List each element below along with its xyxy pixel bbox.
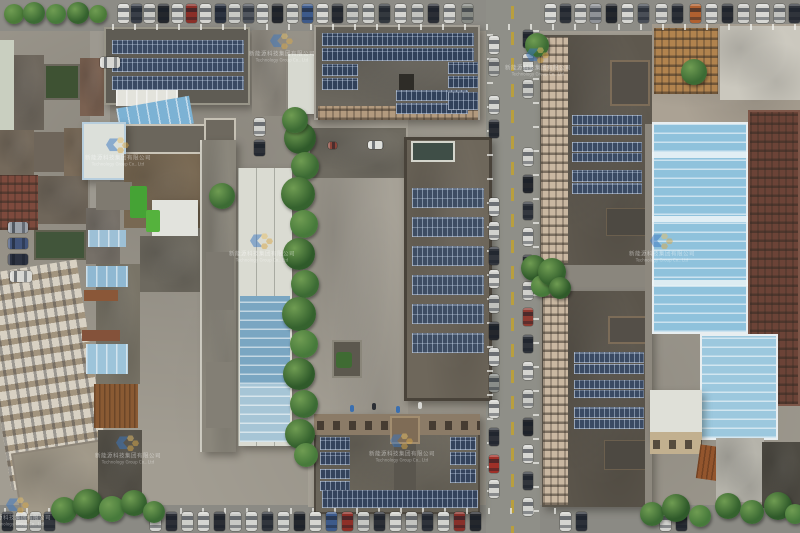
tree xyxy=(525,33,549,57)
solar-panel-row xyxy=(112,40,244,54)
parking-ticks-right-b xyxy=(533,486,539,488)
parked-car xyxy=(575,4,586,23)
parking-ticks-top xyxy=(684,24,686,30)
solar-panel-row xyxy=(450,452,476,465)
parked-car xyxy=(489,295,499,313)
parked-car xyxy=(158,4,169,23)
lane-dash-yellow xyxy=(511,214,514,227)
tree xyxy=(281,177,315,211)
solar-panel-row xyxy=(412,217,484,237)
tree xyxy=(67,2,89,24)
parked-car xyxy=(8,254,28,265)
parked-car xyxy=(523,202,533,220)
roof-gray-1 xyxy=(96,182,132,210)
lane-dash-yellow xyxy=(511,474,514,487)
parked-car xyxy=(523,335,533,353)
parked-car xyxy=(144,4,155,23)
solar-panel-row xyxy=(322,490,478,508)
parking-ticks-right-b xyxy=(533,510,539,512)
solar-panel-row xyxy=(574,352,644,363)
aerial-photograph: 新能源科技集团有限公司Technology Group Co., Ltd新能源科… xyxy=(0,0,800,533)
factory-f xyxy=(404,137,492,401)
array-f1 xyxy=(412,188,484,208)
bldg-top-gray xyxy=(252,30,286,116)
parking-ticks-top xyxy=(706,24,708,30)
bldg-h1-facade xyxy=(541,37,568,263)
person xyxy=(396,406,400,413)
parked-car xyxy=(374,512,385,531)
parked-car xyxy=(523,54,533,72)
solar-panel-row xyxy=(412,304,484,324)
lane-dash-yellow xyxy=(511,292,514,305)
parked-car xyxy=(560,4,571,23)
tree xyxy=(290,210,318,238)
parking-ticks-bottom xyxy=(290,508,292,514)
parking-ticks-top xyxy=(772,24,774,30)
solar-panel-row xyxy=(450,469,476,483)
solar-panel-row xyxy=(574,390,644,399)
solar-panel-row xyxy=(412,275,484,295)
lane-dash-yellow xyxy=(511,370,514,383)
parking-ticks-right-b xyxy=(533,462,539,464)
parked-car xyxy=(287,4,298,23)
parked-car xyxy=(706,4,717,23)
parked-car xyxy=(523,308,533,326)
lane-dash-yellow xyxy=(511,318,514,331)
solar-panel-row xyxy=(320,452,350,465)
parking-ticks-top xyxy=(728,24,730,30)
parking-ticks-top xyxy=(398,24,400,30)
tree xyxy=(291,152,319,180)
parked-car xyxy=(317,4,328,23)
tree xyxy=(290,390,318,418)
bldg-ne-white xyxy=(720,26,800,100)
parking-ticks-right-b xyxy=(533,198,539,200)
truck-green-2 xyxy=(146,210,160,232)
parking-ticks-right-b xyxy=(533,126,539,128)
parked-car xyxy=(622,4,633,23)
tree xyxy=(549,277,571,299)
person xyxy=(350,405,354,412)
roof-w-4 xyxy=(38,176,88,224)
tree xyxy=(290,330,318,358)
parking-ticks-top xyxy=(552,24,554,30)
blue-roof-band-1 xyxy=(652,152,748,158)
parked-car xyxy=(10,271,32,282)
lane-dash-yellow xyxy=(511,162,514,175)
tree xyxy=(283,358,315,390)
bldg-h2-facade xyxy=(543,293,568,505)
parking-ticks-right-a xyxy=(487,418,493,420)
parking-ticks-bottom xyxy=(510,508,512,514)
roof-rust-sw xyxy=(94,384,138,428)
lane-dash-yellow xyxy=(511,266,514,279)
parked-car xyxy=(328,142,337,149)
array-g3 xyxy=(450,437,476,465)
parking-ticks-top xyxy=(376,24,378,30)
lane-dash-yellow xyxy=(511,6,514,19)
parked-car xyxy=(545,4,556,23)
parked-car xyxy=(774,4,785,23)
parked-car xyxy=(332,4,343,23)
solar-panel-row xyxy=(412,188,484,208)
blue-roof-band-2 xyxy=(652,216,748,222)
person xyxy=(418,402,422,409)
parked-car xyxy=(272,4,283,23)
strip-g xyxy=(394,444,416,490)
tree xyxy=(46,4,66,24)
parked-car xyxy=(489,270,499,288)
array-g5 xyxy=(322,490,478,508)
solar-panel-row xyxy=(320,469,350,479)
tree xyxy=(143,501,165,523)
parking-ticks-top xyxy=(442,24,444,30)
tree xyxy=(715,493,741,519)
parked-car xyxy=(100,57,120,68)
awning-blue-1 xyxy=(88,230,126,247)
parking-ticks-right-b xyxy=(533,222,539,224)
array-e2 xyxy=(448,62,478,88)
lane-dash-yellow xyxy=(511,344,514,357)
lane-dash-yellow xyxy=(511,58,514,71)
parked-car xyxy=(738,4,749,23)
solar-panel-row xyxy=(572,153,642,163)
solar-panel-row xyxy=(572,142,642,152)
parked-car xyxy=(523,80,533,98)
parked-car xyxy=(454,512,465,531)
array-f2 xyxy=(412,217,484,237)
lane-dash-yellow xyxy=(511,110,514,123)
parked-car xyxy=(254,118,265,136)
parked-car xyxy=(489,348,499,366)
array-e3 xyxy=(448,92,478,110)
parked-car xyxy=(690,4,701,23)
parked-car xyxy=(523,418,533,436)
array-e5 xyxy=(322,64,358,90)
parked-car xyxy=(672,4,683,23)
array-g2 xyxy=(320,469,350,491)
roof-w-2 xyxy=(34,132,64,172)
truck-green-1 xyxy=(130,186,147,218)
bldg-white-nw xyxy=(82,122,126,180)
parking-ticks-top xyxy=(508,24,510,30)
parking-ticks-right-a xyxy=(487,154,493,156)
roof-w-1 xyxy=(0,130,34,175)
parking-ticks-right-b xyxy=(533,30,539,32)
solar-panel-row xyxy=(572,170,642,182)
parking-ticks-right-b xyxy=(533,390,539,392)
parked-car xyxy=(789,4,800,23)
parked-car xyxy=(230,512,241,531)
lane-dash-yellow xyxy=(511,422,514,435)
solar-panel-row xyxy=(572,126,642,136)
array-g1 xyxy=(320,437,350,465)
array-h2b xyxy=(574,380,644,398)
tree xyxy=(294,443,318,467)
array-g4 xyxy=(450,469,476,483)
parked-car xyxy=(560,512,571,531)
blue-roof-se xyxy=(700,334,778,440)
white-bldg-se xyxy=(650,390,702,438)
lane-dash-yellow xyxy=(511,136,514,149)
solar-panel-row xyxy=(574,419,644,430)
tree xyxy=(640,502,664,526)
parked-car xyxy=(172,4,183,23)
parking-ticks-top xyxy=(464,24,466,30)
parked-car xyxy=(262,512,273,531)
tree xyxy=(23,2,45,24)
tree xyxy=(662,494,690,522)
tree xyxy=(785,504,800,524)
parking-ticks-top xyxy=(574,24,576,30)
roof-gray-2 xyxy=(140,236,202,292)
parked-car xyxy=(523,472,533,490)
parked-car xyxy=(30,512,41,531)
parking-ticks-bottom xyxy=(488,508,490,514)
parked-car xyxy=(215,4,226,23)
parking-ticks-top xyxy=(222,24,224,30)
parked-car xyxy=(310,512,321,531)
parked-car xyxy=(470,512,481,531)
parked-car xyxy=(523,445,533,463)
parked-car xyxy=(462,4,473,23)
parking-ticks-top xyxy=(662,24,664,30)
array-f5 xyxy=(412,304,484,324)
parking-ticks-right-b xyxy=(533,438,539,440)
solar-panel-row xyxy=(320,437,350,450)
lane-dash-yellow xyxy=(511,84,514,97)
parked-car xyxy=(406,512,417,531)
parking-ticks-top xyxy=(420,24,422,30)
parking-ticks-top xyxy=(332,24,334,30)
bldg-c-seg1 xyxy=(206,252,234,310)
parking-ticks-bottom xyxy=(466,508,468,514)
stair-g xyxy=(390,416,420,444)
parked-car xyxy=(523,175,533,193)
bldg-d-blue2 xyxy=(240,384,290,442)
tree xyxy=(282,297,316,331)
parked-car xyxy=(302,4,313,23)
parking-ticks-top xyxy=(156,24,158,30)
parked-car xyxy=(489,58,499,76)
tree xyxy=(73,489,103,519)
solar-panel-row xyxy=(412,246,484,266)
parked-car xyxy=(489,400,499,418)
tree xyxy=(283,238,315,270)
parked-car xyxy=(523,390,533,408)
array-h1a xyxy=(572,115,642,135)
solar-panel-row xyxy=(322,48,474,61)
parked-car xyxy=(722,4,733,23)
solar-panel-row xyxy=(112,76,244,90)
tree xyxy=(291,270,319,298)
bldg-l-horizontal xyxy=(122,124,212,154)
parked-car xyxy=(438,512,449,531)
parking-ticks-top xyxy=(640,24,642,30)
parking-ticks-top xyxy=(244,24,246,30)
array-f3 xyxy=(412,246,484,266)
parked-car xyxy=(118,4,129,23)
parked-car xyxy=(16,512,27,531)
parked-car xyxy=(358,512,369,531)
gray-bldg-se xyxy=(716,438,764,502)
array-h2c xyxy=(574,407,644,429)
parked-car xyxy=(489,322,499,340)
array-e1 xyxy=(322,33,474,61)
parked-car xyxy=(257,4,268,23)
array-h1b xyxy=(572,142,642,162)
parked-car xyxy=(229,4,240,23)
solar-panel-row xyxy=(450,437,476,450)
solar-panel-row xyxy=(574,364,644,375)
parking-ticks-right-a xyxy=(487,394,493,396)
tree xyxy=(282,107,308,133)
parked-car xyxy=(166,512,177,531)
parked-car xyxy=(489,96,499,114)
parked-car xyxy=(278,512,289,531)
solar-panel-row xyxy=(574,407,644,418)
parking-ticks-top xyxy=(288,24,290,30)
box-h1-a xyxy=(610,60,650,106)
lane-dash-yellow xyxy=(511,188,514,201)
solar-panel-row xyxy=(572,183,642,195)
bldg-top-white xyxy=(288,54,316,114)
parked-car xyxy=(214,512,225,531)
lane-dash-yellow xyxy=(511,448,514,461)
parking-ticks-bottom xyxy=(554,508,556,514)
parking-ticks-right-b xyxy=(533,318,539,320)
tree xyxy=(681,59,707,85)
parked-car xyxy=(182,512,193,531)
parked-car xyxy=(756,4,769,23)
parked-car xyxy=(2,512,13,531)
tree xyxy=(209,183,235,209)
parking-ticks-top xyxy=(178,24,180,30)
parking-ticks-top xyxy=(794,24,796,30)
parked-car xyxy=(489,455,499,473)
parking-ticks-right-b xyxy=(533,414,539,416)
parked-car xyxy=(444,4,455,23)
parking-ticks-top xyxy=(486,24,488,30)
parking-ticks-right-a xyxy=(487,178,493,180)
array-f4 xyxy=(412,275,484,295)
array-h1c xyxy=(572,170,642,194)
green-pond-2 xyxy=(34,230,86,260)
green-roof-pond xyxy=(44,64,80,100)
solar-panel-row xyxy=(574,380,644,389)
parked-car xyxy=(198,512,209,531)
array-a xyxy=(112,40,244,90)
parked-car xyxy=(523,498,533,516)
parked-car xyxy=(576,512,587,531)
parking-ticks-top xyxy=(266,24,268,30)
walkway-rust-2 xyxy=(82,330,120,341)
parking-ticks-top xyxy=(750,24,752,30)
parked-car xyxy=(390,512,401,531)
parked-car xyxy=(379,4,390,23)
box-h2-b xyxy=(604,440,650,470)
parked-car xyxy=(428,4,439,23)
parked-car xyxy=(326,512,337,531)
solar-panel-row xyxy=(448,62,478,74)
parked-car xyxy=(656,4,667,23)
solar-panel-row xyxy=(572,115,642,125)
parked-car xyxy=(347,4,358,23)
parked-car xyxy=(186,4,197,23)
parked-car xyxy=(489,374,499,392)
parked-car xyxy=(200,4,211,23)
parked-car xyxy=(8,222,28,233)
box-h1-b xyxy=(606,208,650,236)
lane-dash-yellow xyxy=(511,240,514,253)
solar-panel-row xyxy=(112,58,244,72)
parked-car xyxy=(246,512,257,531)
parking-ticks-top xyxy=(310,24,312,30)
yard-dark-patch xyxy=(310,128,406,178)
tree xyxy=(689,505,711,527)
parked-car xyxy=(638,4,649,23)
parking-ticks-right-b xyxy=(533,342,539,344)
parked-car xyxy=(243,4,254,23)
parked-car xyxy=(523,228,533,246)
tree xyxy=(740,500,764,524)
tree xyxy=(89,5,107,23)
person xyxy=(372,403,376,410)
parking-ticks-right-a xyxy=(487,82,493,84)
box-h2-a xyxy=(608,316,650,344)
parked-car xyxy=(489,198,499,216)
parked-car xyxy=(422,512,433,531)
lane-dash-yellow xyxy=(511,396,514,409)
parking-ticks-top xyxy=(596,24,598,30)
solar-panel-row xyxy=(322,64,358,76)
parked-car xyxy=(395,4,406,23)
parking-ticks-right-a xyxy=(487,370,493,372)
parked-car xyxy=(294,512,305,531)
parked-car xyxy=(489,36,499,54)
parked-car xyxy=(363,4,374,23)
solar-panel-row xyxy=(412,333,484,353)
lane-dash-yellow xyxy=(511,526,514,533)
parked-car xyxy=(412,4,423,23)
parking-ticks-right-b xyxy=(533,102,539,104)
garden-green xyxy=(336,352,352,368)
parking-ticks-top xyxy=(618,24,620,30)
parking-ticks-right-b xyxy=(533,174,539,176)
parking-ticks-right-b xyxy=(533,150,539,152)
blue-roof-band-3 xyxy=(652,280,748,286)
parked-car xyxy=(8,238,28,249)
array-h2a xyxy=(574,352,644,374)
parked-car xyxy=(489,480,499,498)
array-f6 xyxy=(412,333,484,353)
parking-ticks-right-b xyxy=(533,78,539,80)
tree xyxy=(4,4,24,24)
parked-car xyxy=(523,148,533,166)
parking-ticks-top xyxy=(354,24,356,30)
awning-blue-2 xyxy=(86,266,128,287)
parked-car xyxy=(606,4,617,23)
solar-panel-row xyxy=(322,78,358,90)
bldg-c-seg2 xyxy=(206,362,234,428)
parked-car xyxy=(489,247,499,265)
parapet-se xyxy=(650,432,702,454)
lane-dash-yellow xyxy=(511,32,514,45)
parked-car xyxy=(368,141,383,149)
parking-ticks-top xyxy=(134,24,136,30)
parked-car xyxy=(489,428,499,446)
parking-ticks-right-b xyxy=(533,366,539,368)
